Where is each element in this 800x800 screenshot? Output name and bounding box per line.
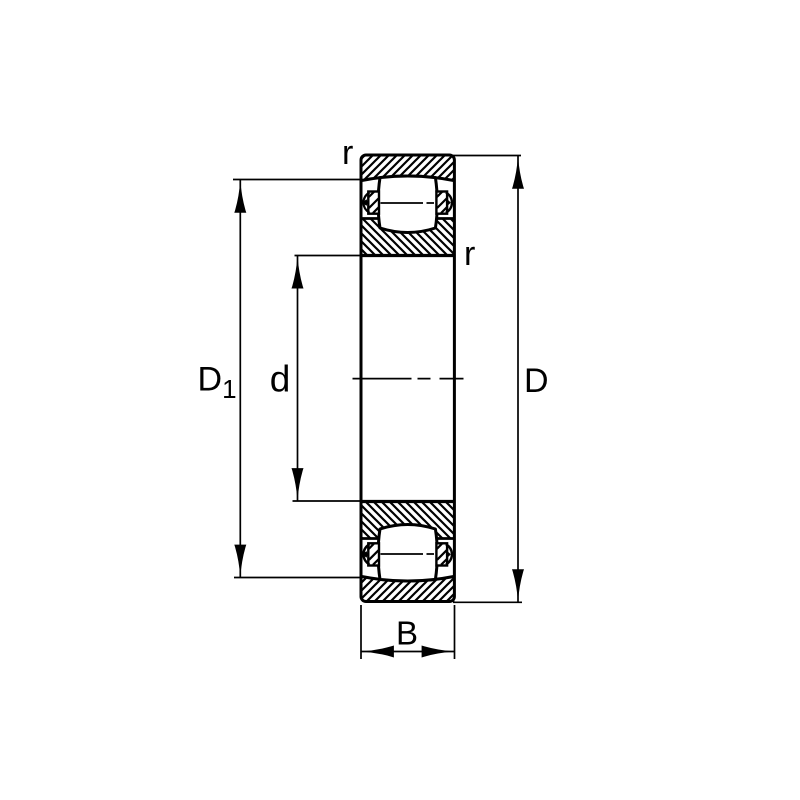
svg-text:D1: D1 (198, 361, 237, 405)
svg-text:r: r (464, 235, 475, 273)
svg-text:B: B (396, 615, 418, 652)
svg-text:d: d (270, 358, 291, 399)
svg-text:r: r (342, 134, 353, 172)
svg-text:D: D (524, 362, 549, 400)
